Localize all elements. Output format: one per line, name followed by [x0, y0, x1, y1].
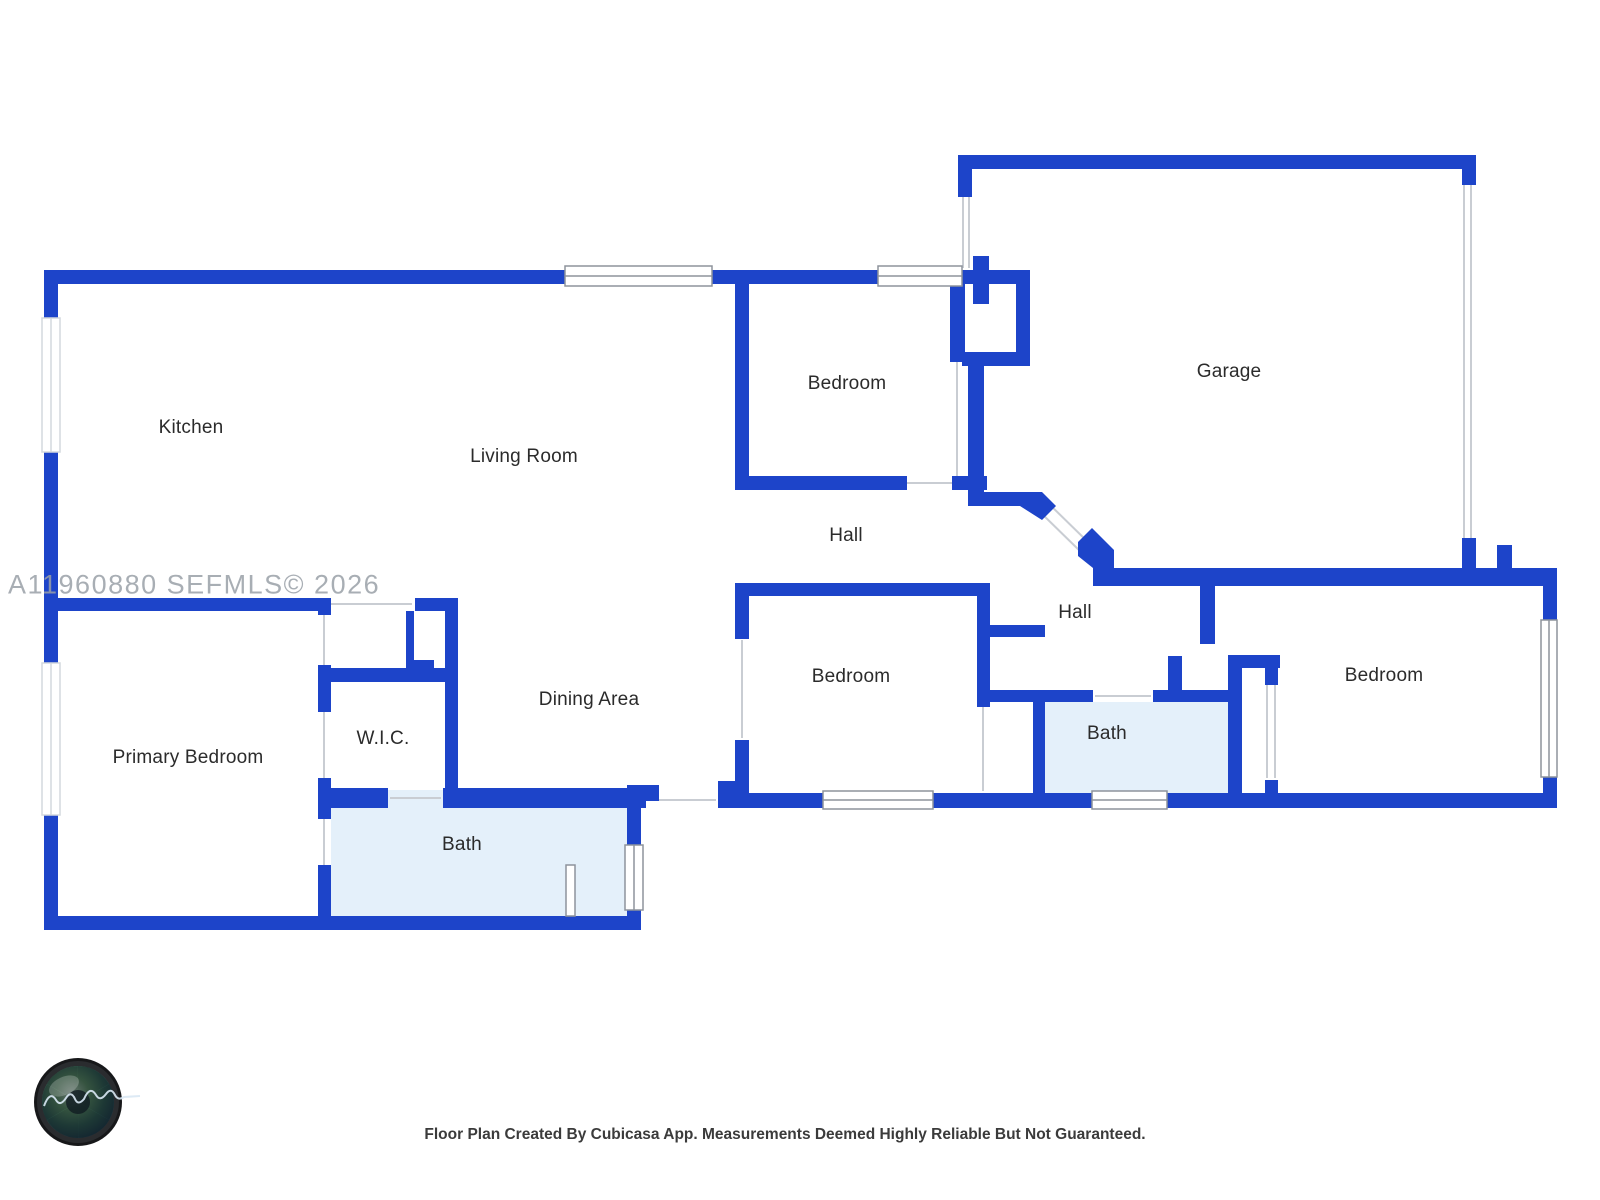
- window-symbol: [42, 318, 60, 452]
- room-label-garage: Garage: [1197, 361, 1262, 383]
- room-label-bath-left: Bath: [442, 834, 482, 856]
- room-label-hall-1: Hall: [829, 525, 863, 547]
- room-label-living-room: Living Room: [470, 446, 578, 468]
- window-symbol: [565, 266, 712, 286]
- room-label-wic: W.I.C.: [357, 728, 410, 750]
- door-leaf-symbol: [566, 865, 575, 916]
- room-label-dining-area: Dining Area: [539, 689, 639, 711]
- walls: [44, 155, 1557, 930]
- door-openings: [324, 185, 1471, 865]
- room-label-hall-2: Hall: [1058, 602, 1092, 624]
- room-label-kitchen: Kitchen: [159, 417, 224, 439]
- window-symbol: [625, 845, 643, 910]
- room-label-bedroom-right: Bedroom: [1345, 665, 1424, 687]
- window-symbol: [823, 791, 933, 809]
- footer-caption: Floor Plan Created By Cubicasa App. Meas…: [0, 1126, 1570, 1144]
- room-label-bedroom-top: Bedroom: [808, 373, 887, 395]
- window-symbol: [1541, 620, 1557, 777]
- mls-watermark: A11960880 SEFMLS© 2026: [8, 570, 380, 601]
- window-symbol: [42, 663, 60, 815]
- room-label-bedroom-middle: Bedroom: [812, 666, 891, 688]
- room-label-primary-bedroom: Primary Bedroom: [113, 747, 264, 769]
- room-label-bath-right: Bath: [1087, 723, 1127, 745]
- window-symbol: [1092, 791, 1167, 809]
- floor-plan-page: Kitchen Living Room Bedroom Garage Hall …: [0, 0, 1600, 1200]
- window-symbol: [878, 266, 962, 286]
